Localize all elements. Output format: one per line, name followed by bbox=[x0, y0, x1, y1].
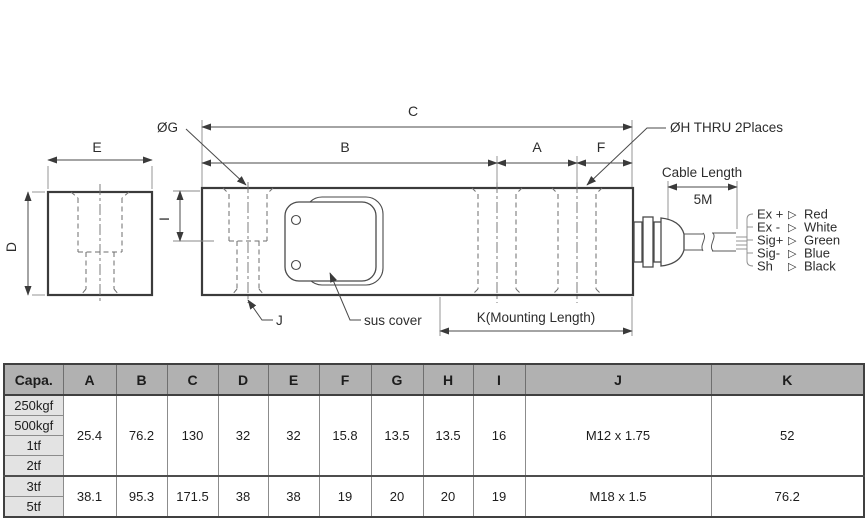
thread-j-label: J bbox=[276, 313, 283, 328]
value-cell: 52 bbox=[711, 395, 864, 476]
hole-g-label: ØG bbox=[157, 120, 178, 135]
end-view: E D bbox=[3, 139, 152, 303]
capacity-cell: 3tf bbox=[4, 476, 63, 497]
dim-label-b: B bbox=[340, 139, 349, 155]
value-cell: 25.4 bbox=[63, 395, 116, 476]
wire-arrow-icon: ▷ bbox=[788, 222, 797, 234]
hole-h-label: ØH THRU 2Places bbox=[670, 120, 783, 135]
wire-legend: Ex + ▷ Red Ex - ▷ White Sig+ ▷ Green Sig… bbox=[747, 207, 840, 274]
wire-arrow-icon: ▷ bbox=[788, 261, 797, 273]
dim-label-e: E bbox=[92, 139, 101, 155]
header-capa: Capa. bbox=[4, 364, 63, 395]
value-cell: 32 bbox=[268, 395, 319, 476]
value-cell: 32 bbox=[218, 395, 268, 476]
header-i: I bbox=[473, 364, 525, 395]
dimensions: C B A F ØG ØH THRU 2Places I Cable Lengt… bbox=[156, 103, 783, 336]
table-row: 3tf 38.1 95.3 171.5 38 38 19 20 20 19 M1… bbox=[4, 476, 864, 497]
sus-cover-label: sus cover bbox=[364, 313, 422, 328]
value-cell: 20 bbox=[371, 476, 423, 517]
value-cell: 15.8 bbox=[319, 395, 371, 476]
header-e: E bbox=[268, 364, 319, 395]
header-d: D bbox=[218, 364, 268, 395]
value-cell: M12 x 1.75 bbox=[525, 395, 711, 476]
value-cell: 171.5 bbox=[167, 476, 218, 517]
loadcell-drawing: E D bbox=[0, 0, 867, 360]
wire-row: Sh ▷ Black bbox=[757, 259, 836, 274]
header-g: G bbox=[371, 364, 423, 395]
value-cell: 38 bbox=[268, 476, 319, 517]
wire-signal: Sh bbox=[757, 259, 773, 274]
loadcell-datasheet: E D bbox=[0, 0, 867, 529]
value-cell: 38.1 bbox=[63, 476, 116, 517]
cable-length-label: Cable Length bbox=[662, 165, 742, 180]
value-cell: 16 bbox=[473, 395, 525, 476]
wire-arrow-icon: ▷ bbox=[788, 248, 797, 260]
cable-gland bbox=[634, 217, 747, 267]
value-cell: 95.3 bbox=[116, 476, 167, 517]
value-cell: 19 bbox=[473, 476, 525, 517]
dim-label-d: D bbox=[3, 242, 19, 252]
value-cell: 38 bbox=[218, 476, 268, 517]
dim-label-a: A bbox=[532, 139, 542, 155]
value-cell: 19 bbox=[319, 476, 371, 517]
table-header-row: Capa. A B C D E F G H I J K bbox=[4, 364, 864, 395]
cable-length-value: 5M bbox=[694, 192, 713, 207]
capacity-cell: 250kgf bbox=[4, 395, 63, 416]
value-cell: 20 bbox=[423, 476, 473, 517]
wire-arrow-icon: ▷ bbox=[788, 235, 797, 247]
capacity-cell: 1tf bbox=[4, 436, 63, 456]
value-cell: 13.5 bbox=[423, 395, 473, 476]
capacity-cell: 5tf bbox=[4, 497, 63, 518]
value-cell: M18 x 1.5 bbox=[525, 476, 711, 517]
dim-label-c: C bbox=[408, 103, 418, 119]
value-cell: 76.2 bbox=[711, 476, 864, 517]
dimension-table: Capa. A B C D E F G H I J K 250kgf 25.4 … bbox=[3, 363, 865, 518]
wire-arrow-icon: ▷ bbox=[788, 209, 797, 221]
header-k: K bbox=[711, 364, 864, 395]
header-b: B bbox=[116, 364, 167, 395]
header-h: H bbox=[423, 364, 473, 395]
dim-label-i: I bbox=[156, 217, 172, 221]
value-cell: 130 bbox=[167, 395, 218, 476]
mounting-length-label: K(Mounting Length) bbox=[477, 310, 596, 325]
value-cell: 76.2 bbox=[116, 395, 167, 476]
capacity-cell: 2tf bbox=[4, 456, 63, 477]
header-f: F bbox=[319, 364, 371, 395]
dim-label-f: F bbox=[597, 139, 606, 155]
table-row: 250kgf 25.4 76.2 130 32 32 15.8 13.5 13.… bbox=[4, 395, 864, 416]
header-a: A bbox=[63, 364, 116, 395]
wire-color: Black bbox=[804, 259, 836, 274]
header-j: J bbox=[525, 364, 711, 395]
value-cell: 13.5 bbox=[371, 395, 423, 476]
capacity-cell: 500kgf bbox=[4, 416, 63, 436]
side-view bbox=[202, 182, 633, 303]
header-c: C bbox=[167, 364, 218, 395]
